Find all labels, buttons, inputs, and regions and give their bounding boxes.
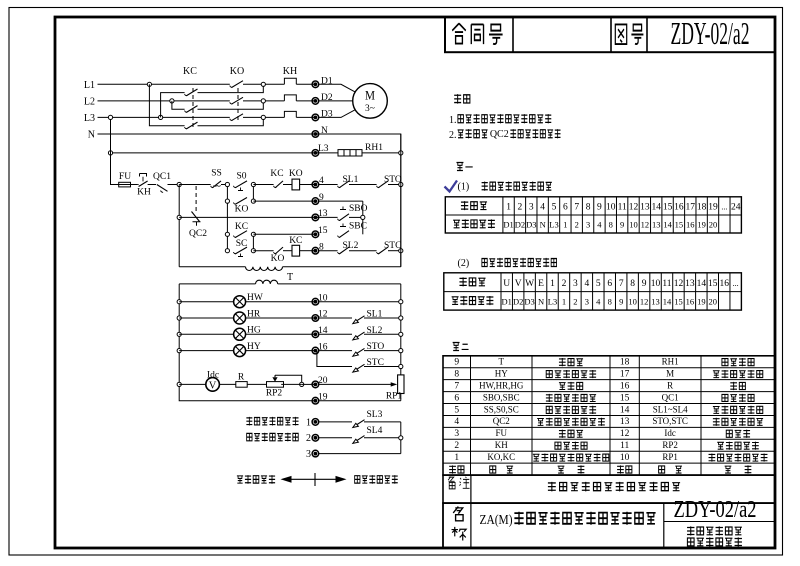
- svg-text:3: 3: [306, 449, 311, 460]
- svg-text:1: 1: [506, 203, 511, 213]
- svg-text:2: 2: [454, 441, 459, 451]
- svg-text:5: 5: [454, 405, 459, 415]
- svg-text:16: 16: [686, 220, 695, 230]
- svg-text:SL2: SL2: [343, 241, 359, 251]
- svg-text:3: 3: [586, 220, 590, 230]
- svg-text:SL1: SL1: [343, 175, 359, 185]
- svg-text:8: 8: [608, 297, 612, 307]
- svg-text:8: 8: [586, 203, 591, 213]
- svg-text:RP1: RP1: [662, 452, 678, 462]
- svg-text:SL1~SL4: SL1~SL4: [653, 404, 688, 414]
- svg-text:15: 15: [675, 220, 684, 230]
- svg-text:16: 16: [719, 279, 729, 289]
- svg-text:9: 9: [619, 297, 623, 307]
- svg-text:13: 13: [640, 203, 650, 213]
- svg-text:KH: KH: [495, 440, 508, 450]
- svg-text:14: 14: [663, 220, 672, 230]
- svg-text:SC: SC: [236, 239, 248, 249]
- svg-text:L1: L1: [84, 80, 95, 91]
- svg-text:HG: HG: [247, 326, 261, 336]
- svg-text:20: 20: [709, 297, 718, 307]
- svg-text:R: R: [667, 380, 673, 390]
- svg-text:HR: HR: [247, 309, 261, 319]
- svg-text:5: 5: [596, 279, 601, 289]
- svg-text:2: 2: [562, 279, 567, 289]
- svg-text:M: M: [666, 368, 674, 378]
- svg-text:1: 1: [550, 279, 555, 289]
- svg-text:HW,HR,HG: HW,HR,HG: [479, 380, 524, 390]
- svg-text:8: 8: [454, 369, 459, 379]
- svg-text:6: 6: [563, 203, 568, 213]
- svg-text:SBC: SBC: [349, 222, 367, 232]
- svg-text:16: 16: [686, 297, 695, 307]
- svg-text:D1: D1: [502, 297, 512, 307]
- svg-text:11: 11: [662, 279, 671, 289]
- svg-text:QC1: QC1: [153, 172, 171, 182]
- svg-text:13: 13: [318, 209, 328, 219]
- svg-text:12: 12: [629, 203, 639, 213]
- svg-text:1: 1: [454, 453, 459, 463]
- svg-text:18: 18: [697, 203, 707, 213]
- svg-text:24: 24: [731, 203, 741, 213]
- svg-text:QC2: QC2: [493, 416, 510, 426]
- svg-text:SL2: SL2: [367, 326, 383, 336]
- svg-text:8: 8: [609, 220, 613, 230]
- svg-text:D1: D1: [503, 220, 513, 230]
- svg-text:15: 15: [708, 279, 718, 289]
- svg-text:4: 4: [597, 220, 602, 230]
- svg-text:19: 19: [697, 220, 706, 230]
- svg-text:QC1: QC1: [662, 392, 679, 402]
- svg-text:E: E: [538, 279, 544, 289]
- svg-text:9: 9: [454, 358, 459, 368]
- svg-text:14: 14: [620, 405, 630, 415]
- svg-text:FU: FU: [495, 428, 507, 438]
- svg-text:ZDY-02/a2: ZDY-02/a2: [674, 497, 757, 523]
- svg-text:KC: KC: [289, 236, 302, 246]
- svg-text:D2: D2: [515, 220, 525, 230]
- svg-text:17: 17: [686, 203, 696, 213]
- svg-text:16: 16: [674, 203, 684, 213]
- svg-text:4: 4: [540, 203, 545, 213]
- svg-text:3: 3: [454, 429, 459, 439]
- svg-text:KC: KC: [183, 66, 197, 77]
- svg-text:V: V: [515, 279, 522, 289]
- svg-text:SS: SS: [211, 169, 222, 179]
- svg-text:13: 13: [685, 279, 695, 289]
- svg-text:7: 7: [574, 203, 579, 213]
- svg-text:S0: S0: [236, 172, 246, 182]
- svg-text:17: 17: [620, 369, 630, 379]
- svg-text:D2: D2: [513, 297, 523, 307]
- svg-text:10: 10: [606, 203, 616, 213]
- svg-text:4: 4: [596, 297, 601, 307]
- svg-text:KO: KO: [289, 169, 303, 179]
- svg-text:...: ...: [733, 279, 739, 288]
- svg-text:4: 4: [584, 279, 589, 289]
- svg-text:6: 6: [607, 279, 612, 289]
- svg-text:RH1: RH1: [662, 357, 679, 367]
- svg-text:16: 16: [620, 381, 630, 391]
- svg-text:L3: L3: [318, 144, 329, 154]
- svg-text:13: 13: [620, 417, 630, 427]
- svg-text:19: 19: [697, 297, 706, 307]
- svg-text:10: 10: [620, 453, 630, 463]
- svg-text:T: T: [499, 357, 505, 367]
- svg-text:2: 2: [573, 297, 577, 307]
- svg-text:(2): (2): [458, 258, 470, 269]
- svg-text:STO,STC: STO,STC: [652, 416, 688, 426]
- svg-text:SL4: SL4: [367, 426, 383, 436]
- svg-text:13: 13: [651, 297, 660, 307]
- svg-text:7: 7: [454, 381, 459, 391]
- svg-text:10: 10: [651, 279, 661, 289]
- svg-text:9: 9: [642, 279, 647, 289]
- svg-text:3: 3: [529, 203, 534, 213]
- svg-text:U: U: [503, 279, 510, 289]
- svg-text:9: 9: [597, 203, 602, 213]
- svg-text:L3: L3: [548, 297, 557, 307]
- svg-text:KO,KC: KO,KC: [487, 452, 515, 462]
- svg-text:1: 1: [562, 297, 566, 307]
- svg-text:STC: STC: [367, 358, 384, 368]
- svg-text:V: V: [209, 380, 217, 391]
- svg-text:11: 11: [618, 203, 627, 213]
- svg-text:ZDY-02/a2: ZDY-02/a2: [671, 15, 750, 51]
- svg-text:2: 2: [518, 203, 523, 213]
- svg-text:RH1: RH1: [365, 143, 383, 153]
- svg-text:RP1: RP1: [386, 392, 403, 402]
- svg-text:14: 14: [663, 297, 672, 307]
- svg-text:7: 7: [619, 279, 624, 289]
- svg-text:D3: D3: [524, 297, 534, 307]
- svg-text:FU: FU: [119, 172, 131, 182]
- svg-text:N: N: [540, 220, 546, 230]
- svg-text:SBO: SBO: [349, 204, 368, 214]
- svg-text:ZA(M): ZA(M): [480, 513, 513, 528]
- svg-text:5: 5: [552, 203, 557, 213]
- svg-text:13: 13: [652, 220, 661, 230]
- svg-text:HY: HY: [247, 342, 261, 352]
- svg-text:L2: L2: [84, 97, 95, 108]
- svg-text:1: 1: [306, 417, 311, 428]
- svg-text:1.: 1.: [449, 115, 457, 126]
- svg-text:8: 8: [630, 279, 635, 289]
- svg-text:KO: KO: [235, 205, 249, 215]
- svg-text:...: ...: [721, 203, 727, 212]
- svg-text:SS,S0,SC: SS,S0,SC: [484, 404, 519, 414]
- svg-text:KH: KH: [137, 188, 151, 198]
- svg-text:15: 15: [620, 393, 630, 403]
- svg-text:(1): (1): [458, 182, 470, 193]
- svg-text:KH: KH: [283, 66, 297, 77]
- svg-text:R: R: [238, 373, 245, 383]
- svg-text:KO: KO: [271, 254, 285, 264]
- svg-text:SL1: SL1: [367, 310, 383, 320]
- svg-text:HY: HY: [495, 368, 508, 378]
- svg-text:QC2: QC2: [490, 129, 509, 140]
- svg-text:N: N: [538, 297, 544, 307]
- svg-text:15: 15: [674, 297, 683, 307]
- svg-text:SL3: SL3: [367, 410, 383, 420]
- svg-text:M: M: [365, 88, 375, 103]
- svg-text:12: 12: [620, 429, 630, 439]
- svg-text:KC: KC: [270, 169, 283, 179]
- svg-text:20: 20: [709, 220, 718, 230]
- svg-text:14: 14: [697, 279, 707, 289]
- svg-text:RP2: RP2: [266, 389, 283, 399]
- svg-text:N: N: [321, 126, 328, 136]
- svg-text:6: 6: [454, 393, 459, 403]
- svg-text:19: 19: [708, 203, 718, 213]
- svg-text:HW: HW: [247, 293, 263, 303]
- svg-text:L3: L3: [84, 113, 95, 124]
- svg-text:N: N: [88, 130, 95, 141]
- svg-text:KC: KC: [235, 222, 248, 232]
- svg-text:T: T: [287, 272, 293, 283]
- svg-text:3: 3: [585, 297, 589, 307]
- svg-text:12: 12: [640, 297, 649, 307]
- svg-text:4: 4: [454, 417, 459, 427]
- svg-text:12: 12: [674, 279, 684, 289]
- svg-text:2: 2: [306, 433, 311, 444]
- svg-text:KO: KO: [230, 66, 244, 77]
- svg-text:2: 2: [575, 220, 579, 230]
- svg-text:SBO,SBC: SBO,SBC: [483, 392, 520, 402]
- svg-text:10: 10: [629, 220, 638, 230]
- svg-text:9: 9: [620, 220, 624, 230]
- svg-text:D3: D3: [526, 220, 536, 230]
- svg-text:L3: L3: [549, 220, 558, 230]
- svg-text:15: 15: [663, 203, 673, 213]
- svg-text:QC2: QC2: [189, 229, 207, 239]
- svg-text:10: 10: [628, 297, 637, 307]
- svg-text:15: 15: [318, 226, 328, 236]
- svg-text:14: 14: [651, 203, 661, 213]
- svg-text:RP2: RP2: [662, 440, 678, 450]
- svg-text:3: 3: [573, 279, 578, 289]
- svg-text:11: 11: [620, 441, 629, 451]
- svg-text:STO: STO: [367, 342, 385, 352]
- svg-text:18: 18: [620, 358, 630, 368]
- svg-text:3~: 3~: [365, 104, 375, 114]
- svg-text:W: W: [525, 279, 534, 289]
- svg-text:2.: 2.: [449, 130, 457, 141]
- svg-text:1: 1: [563, 220, 567, 230]
- svg-text:12: 12: [641, 220, 650, 230]
- svg-text:Idc: Idc: [664, 428, 676, 438]
